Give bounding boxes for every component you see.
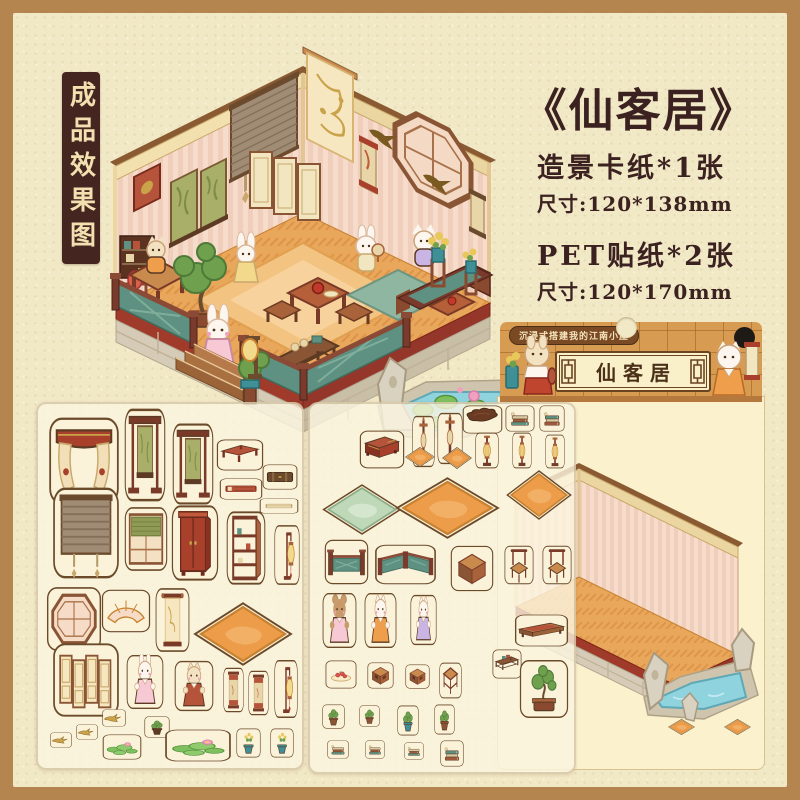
sticker-potted-plant [322, 704, 345, 729]
sticker-swallow [102, 709, 126, 727]
finished-effect-badge: 成品效果图 [62, 72, 100, 264]
sticker-food-plate [325, 660, 357, 689]
sticker-railing-corner [374, 544, 437, 585]
spec-list: 造景卡纸*1张 尺寸:120*138mm PET贴纸*2张 尺寸:120*170… [537, 146, 777, 322]
sticker-lantern-stand [274, 524, 300, 586]
sticker-mat-small [405, 447, 435, 467]
package-header: 沉浸式搭建我的江南小屋 仙客居 [500, 322, 762, 402]
finished-effect-label: 成品效果图 [63, 81, 100, 256]
sticker-mat-small [668, 719, 695, 735]
sticker-chair [542, 545, 572, 585]
sticker-potted-flowers [270, 728, 294, 758]
sticker-cat-character [364, 592, 397, 649]
hanging-scroll-icon [359, 135, 378, 194]
sticker-lotus-leaves [164, 729, 232, 762]
sticker-suitcase [262, 464, 298, 490]
spec-pet-stickers: PET贴纸*2张 尺寸:120*170mm [537, 234, 777, 305]
sticker-wardrobe [171, 504, 219, 582]
hang-hole [616, 317, 637, 338]
sticker-swallow [76, 724, 98, 740]
sticker-scroll-stand [124, 407, 166, 503]
sticker-bamboo-blind [52, 486, 120, 580]
sticker-bench [514, 614, 569, 647]
sticker-potted-plant [397, 705, 419, 736]
sticker-lotus-leaves [102, 734, 142, 760]
sticker-potted-flowers [236, 728, 261, 758]
sticker-mat-small [442, 447, 472, 469]
product-title: 《仙客居》 [505, 74, 773, 139]
sticker-palace-lantern [512, 432, 532, 469]
cat-character-icon [147, 236, 165, 273]
sticker-book-stack [327, 740, 349, 759]
sticker-orange-rug-large [395, 477, 500, 539]
sticker-mini-scroll [248, 670, 269, 716]
sticker-ruyi-table [462, 405, 503, 434]
sticker-box-stool [367, 662, 394, 689]
lattice-icon [560, 358, 577, 385]
sticker-etagere-shelf [226, 510, 266, 586]
sticker-book-stack [505, 405, 535, 432]
sticker-chair [504, 545, 534, 585]
sticker-book-stack [404, 742, 424, 760]
spec-size: 尺寸:120*138mm [537, 188, 777, 217]
sticker-railing [324, 539, 369, 585]
sticker-book-stack [539, 405, 565, 432]
sticker-lantern-stand [274, 659, 298, 719]
spec-scene-card: 造景卡纸*1张 尺寸:120*138mm [537, 146, 777, 217]
spec-name: PET贴纸*2张 [537, 234, 777, 273]
sticker-swallow [50, 732, 72, 748]
cat-with-scroll-icon [710, 340, 760, 396]
title-block: 《仙客居》 [505, 74, 773, 139]
sticker-orange-rug-wide [506, 470, 572, 520]
sticker-bear-character [322, 592, 357, 649]
sticker-cat-character [174, 660, 214, 712]
spec-name: 造景卡纸*1张 [537, 146, 777, 185]
sticker-window-blind [124, 506, 168, 572]
sticker-hanging-scroll [155, 587, 190, 653]
sticker-cat-character [410, 594, 437, 646]
sticker-green-mat [322, 484, 402, 535]
hanging-scroll-icon [469, 188, 486, 239]
sticker-mat-small [724, 719, 751, 735]
sticker-side-table [216, 439, 264, 471]
sticker-book-stack [440, 740, 464, 767]
sticker-potted-plant [434, 704, 455, 735]
sticker-red-chest [359, 430, 405, 469]
spec-size: 尺寸:120*170mm [537, 276, 777, 305]
rabbit-with-vase-icon [504, 336, 556, 396]
package-name-plate: 仙客居 [555, 351, 711, 392]
sticker-fan-window [101, 589, 151, 633]
lattice-icon [689, 358, 706, 385]
sticker-square-stool [450, 545, 494, 592]
sticker-mini-scroll [223, 667, 244, 713]
sticker-box-stool [405, 664, 430, 689]
sticker-red-book [219, 478, 263, 500]
sticker-orange-rug [193, 602, 293, 666]
sticker-book-stack [365, 740, 385, 759]
package-title: 仙客居 [580, 357, 686, 386]
sticker-sheet-2 [308, 402, 576, 774]
sticker-bonsai-tree [519, 659, 569, 719]
sticker-low-shelf [492, 649, 522, 679]
teapot-icon [313, 283, 324, 294]
sticker-rabbit-character [126, 654, 164, 710]
finished-room-illustration [78, 38, 502, 438]
sticker-openwork-stool [439, 662, 462, 699]
sticker-palace-lantern [545, 434, 565, 469]
sticker-palace-lantern [475, 432, 499, 469]
sticker-folding-screen [52, 642, 120, 718]
lotus-flower-icon [469, 391, 479, 401]
sticker-potted-plant [359, 705, 380, 727]
sticker-sheet-1 [36, 402, 304, 770]
sticker-scroll-stand [172, 422, 214, 506]
